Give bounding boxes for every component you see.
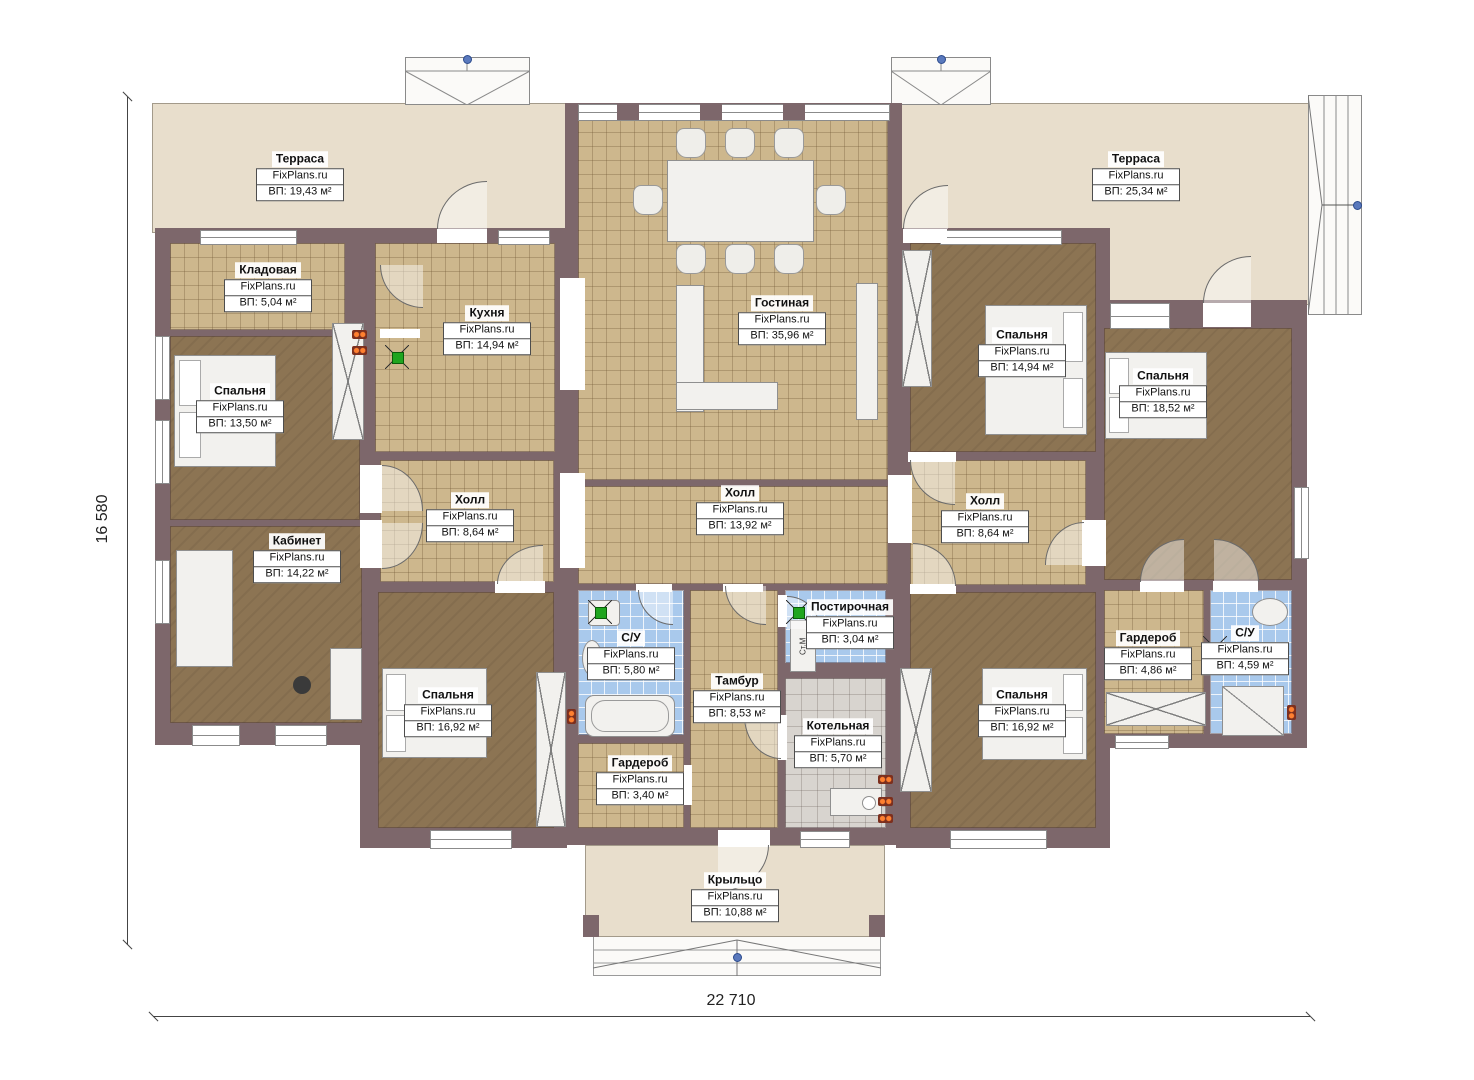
- room-label-boiler: Котельная FixPlans.ruВП: 5,70 м²: [794, 718, 882, 768]
- ceiling-light-icon: [385, 345, 409, 369]
- axis-marker-icon: [733, 953, 742, 962]
- dimension-height: 16 580: [94, 479, 112, 559]
- room-label-bedroom-top-left: Спальня FixPlans.ruВП: 13,50 м²: [196, 383, 284, 433]
- room-label-bedroom-right-2: Спальня FixPlans.ruВП: 18,52 м²: [1119, 368, 1207, 418]
- window: [800, 831, 850, 848]
- chair: [774, 244, 804, 274]
- dining-table: [667, 160, 814, 242]
- room-label-storeroom: Кладовая FixPlans.ruВП: 5,04 м²: [224, 262, 312, 312]
- floor-plan: Ст.М 16 580 22 710 Терраса FixPlans.ruВП…: [0, 0, 1474, 1080]
- window: [1294, 487, 1309, 559]
- axis-marker-icon: [1353, 201, 1362, 210]
- room-label-porch: Крыльцо FixPlans.ruВП: 10,88 м²: [691, 872, 779, 922]
- axis-marker-icon: [463, 55, 472, 64]
- desk: [330, 648, 362, 720]
- boiler-unit: [830, 788, 882, 816]
- terrace-left-floor: [152, 103, 570, 233]
- chair: [816, 185, 846, 215]
- office-sofa: [176, 550, 233, 667]
- closet: [900, 668, 932, 792]
- closet: [536, 672, 566, 827]
- bathtub: [585, 695, 675, 737]
- socket-icon: [878, 814, 893, 823]
- dimension-width: 22 710: [686, 992, 776, 1010]
- door-gap: [1140, 581, 1184, 592]
- shower: [1222, 686, 1284, 736]
- room-label-vestibule: Тамбур FixPlans.ruВП: 8,53 м²: [693, 673, 781, 723]
- window: [155, 336, 170, 400]
- room-label-cabinet: Кабинет FixPlans.ruВП: 14,22 м²: [253, 533, 341, 583]
- room-label-living: Гостиная FixPlans.ruВП: 35,96 м²: [738, 295, 826, 345]
- room-label-hall-left: Холл FixPlans.ruВП: 8,64 м²: [426, 492, 514, 542]
- room-label-bedroom-right-1: Спальня FixPlans.ruВП: 14,94 м²: [978, 327, 1066, 377]
- ceiling-light-icon: [588, 600, 612, 624]
- window: [192, 725, 240, 746]
- porch-post-right: [869, 915, 885, 937]
- roof-drain-right: [891, 57, 991, 105]
- room-label-kitchen: Кухня FixPlans.ruВП: 14,94 м²: [443, 305, 531, 355]
- window: [200, 230, 297, 245]
- socket-icon: [352, 330, 367, 339]
- window: [1115, 735, 1169, 749]
- window: [1110, 303, 1170, 329]
- chair: [676, 128, 706, 158]
- dimension-line-vertical: [127, 97, 128, 945]
- window-post: [700, 103, 722, 120]
- chair: [774, 128, 804, 158]
- window-post: [617, 103, 639, 120]
- toilet: [1252, 598, 1288, 626]
- chair: [725, 128, 755, 158]
- window: [950, 830, 1047, 849]
- dimension-line-horizontal: [153, 1016, 1310, 1017]
- closet: [1106, 692, 1206, 726]
- door-gap: [360, 465, 382, 513]
- passage: [888, 475, 912, 543]
- sofa: [676, 382, 778, 410]
- window: [155, 420, 170, 484]
- room-label-bedroom-bottom-left: Спальня FixPlans.ruВП: 16,92 м²: [404, 687, 492, 737]
- socket-icon: [1287, 705, 1296, 720]
- roof-drain-left: [405, 57, 530, 105]
- room-label-bedroom-bottom-right: Спальня FixPlans.ruВП: 16,92 м²: [978, 687, 1066, 737]
- room-label-terrace-right: Терраса FixPlans.ruВП: 25,34 м²: [1092, 151, 1180, 201]
- tv-unit: [856, 283, 878, 420]
- window: [940, 230, 1062, 245]
- socket-icon: [567, 709, 576, 724]
- door-gap: [684, 765, 692, 805]
- door-gap: [380, 329, 420, 338]
- axis-marker-icon: [937, 55, 946, 64]
- room-label-bathroom-right: С/У FixPlans.ruВП: 4,59 м²: [1201, 625, 1289, 675]
- room-label-wardrobe-center: Гардероб FixPlans.ruВП: 3,40 м²: [596, 755, 684, 805]
- porch-post-left: [583, 915, 599, 937]
- door-gap: [1203, 303, 1251, 327]
- door-gap: [1213, 581, 1258, 592]
- socket-icon: [352, 346, 367, 355]
- room-label-hall-right: Холл FixPlans.ruВП: 8,64 м²: [941, 493, 1029, 543]
- closet: [902, 250, 932, 387]
- passage: [560, 473, 585, 568]
- window-post: [783, 103, 805, 120]
- window: [275, 725, 327, 746]
- door-gap: [903, 229, 947, 243]
- chair: [676, 244, 706, 274]
- window: [155, 560, 170, 624]
- door-gap: [360, 520, 382, 568]
- room-label-wardrobe-right: Гардероб FixPlans.ruВП: 4,86 м²: [1104, 630, 1192, 680]
- room-label-terrace-left: Терраса FixPlans.ruВП: 19,43 м²: [256, 151, 344, 201]
- chair: [633, 185, 663, 215]
- door-gap: [437, 229, 487, 243]
- closet: [332, 323, 364, 440]
- window: [430, 830, 512, 849]
- passage: [560, 278, 585, 390]
- room-label-laundry: Постирочная FixPlans.ruВП: 3,04 м²: [806, 599, 894, 649]
- desk-chair: [293, 676, 311, 694]
- room-label-bathroom-left: С/У FixPlans.ruВП: 5,80 м²: [587, 630, 675, 680]
- socket-icon: [878, 775, 893, 784]
- room-label-hall-center: Холл FixPlans.ruВП: 13,92 м²: [696, 485, 784, 535]
- chair: [725, 244, 755, 274]
- window: [498, 230, 550, 245]
- socket-icon: [878, 797, 893, 806]
- passage: [1082, 520, 1106, 566]
